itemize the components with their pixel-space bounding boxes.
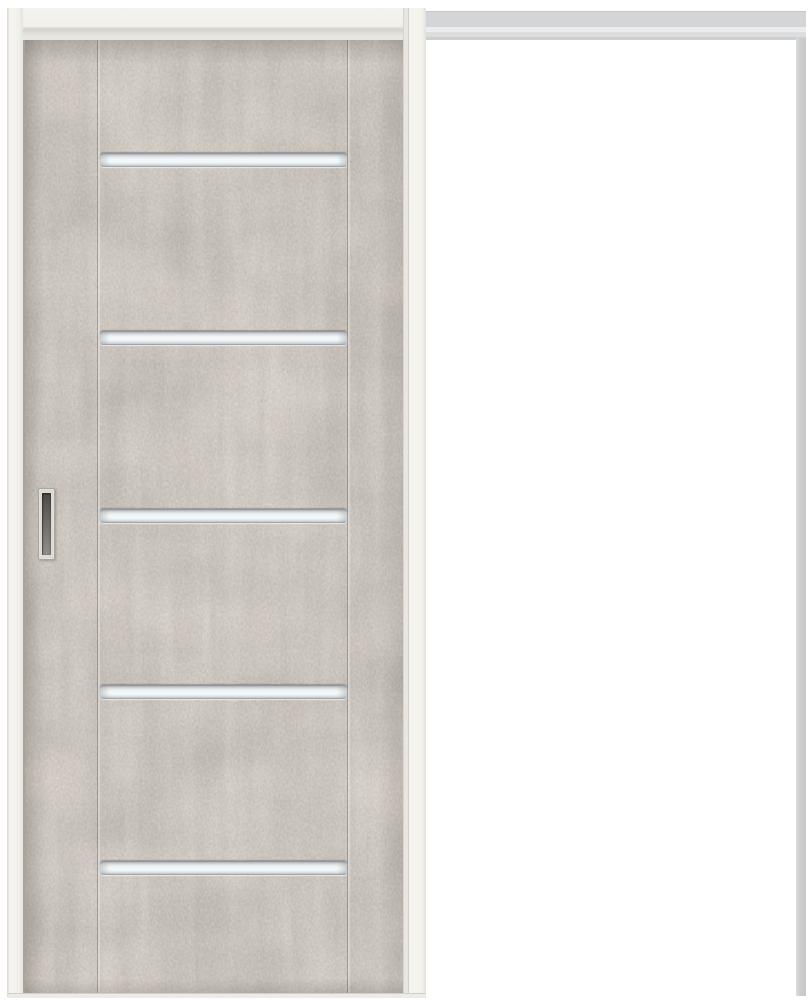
floor-shadow-line xyxy=(8,993,426,998)
overhead-track xyxy=(426,11,806,40)
door-frame-right-jamb xyxy=(796,38,806,996)
frosted-glass-slat xyxy=(100,509,347,523)
door-product-photo xyxy=(0,0,812,1000)
sliding-door-panel xyxy=(23,40,403,993)
door-frame-header xyxy=(23,8,403,41)
frosted-glass-slat xyxy=(100,861,347,875)
frosted-glass-slat xyxy=(100,153,347,167)
handle-recess xyxy=(42,493,51,555)
recessed-pull-handle xyxy=(38,488,55,560)
glass-slats-layer xyxy=(25,40,403,993)
frosted-glass-slat xyxy=(100,331,347,345)
frosted-glass-slat xyxy=(100,685,347,699)
door-frame-vertical-casing xyxy=(403,8,426,995)
